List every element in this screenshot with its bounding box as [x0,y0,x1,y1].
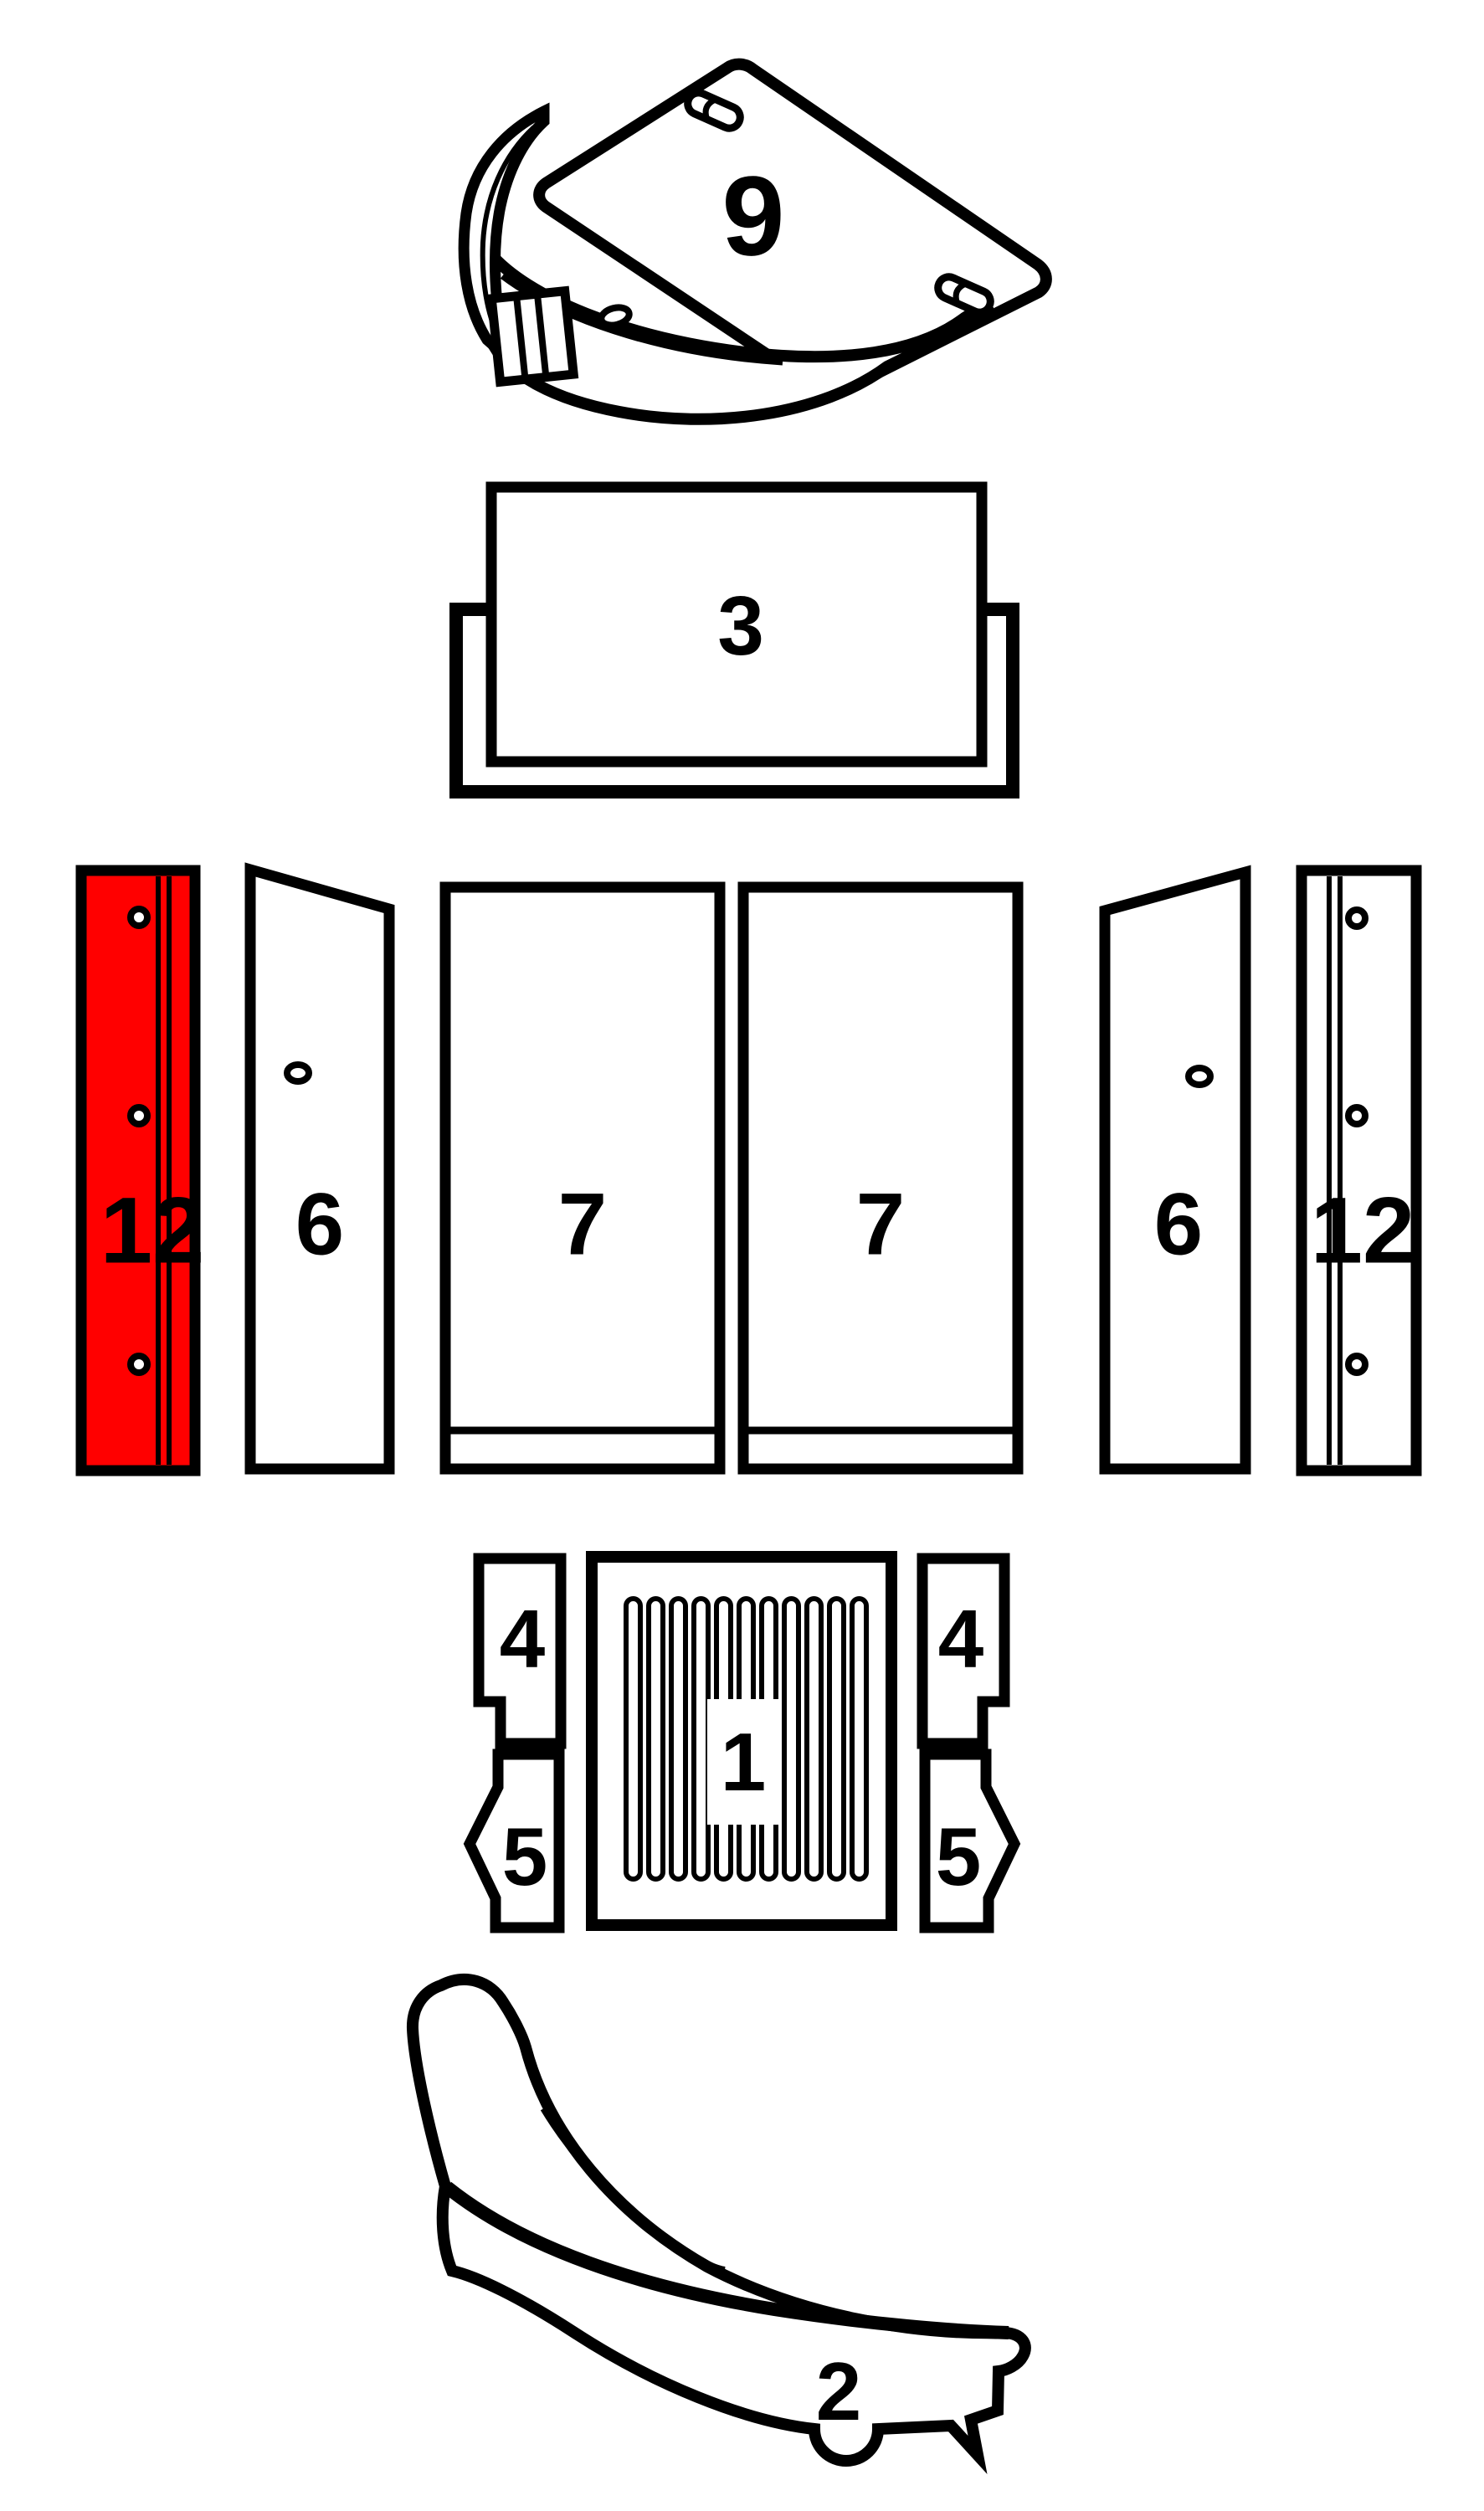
parts-diagram: 3 9 [0,0,1484,2511]
part-12-left-hole [131,909,147,926]
part-5-right-label: 5 [936,1810,982,1903]
part-12-left-body [81,870,195,1471]
part-1-grate[interactable]: 1 [592,1557,891,1925]
part-6-left-hole [287,1065,309,1081]
part-6-right-body [1105,872,1245,1469]
part-6-left-body [250,870,389,1469]
part-12-right-label: 12 [1311,1178,1415,1283]
part-12-left-side-liner[interactable]: 12 [81,870,204,1471]
part-12-left-hole [131,1107,147,1124]
part-9-label: 9 [721,153,784,280]
part-2-label: 2 [816,2345,862,2437]
part-2-log-guard[interactable]: 2 [413,1980,1025,2461]
part-12-right-hole [1348,1107,1365,1124]
part-12-left-label: 12 [100,1178,205,1283]
part-5-right-stone[interactable]: 5 [925,1754,1014,1928]
part-7-left-back-brick[interactable]: 7 [445,887,720,1469]
part-1-label: 1 [721,1716,767,1808]
part-4-right-stone[interactable]: 4 [922,1558,1004,1743]
part-5-left-stone[interactable]: 5 [470,1754,559,1928]
part-12-right-hole [1348,910,1365,927]
part-7-left-label: 7 [558,1176,607,1274]
part-6-right-hole [1189,1068,1210,1085]
part-7-right-back-brick[interactable]: 7 [743,887,1018,1469]
part-9-clip [491,291,573,383]
part-4-right-label: 4 [938,1593,984,1685]
part-3-back-panel[interactable]: 3 [456,487,1013,792]
part-6-left-label: 6 [295,1176,344,1274]
part-6-right-side-brick[interactable]: 6 [1105,872,1245,1469]
part-6-left-side-brick[interactable]: 6 [250,870,389,1469]
part-12-right-body [1302,870,1416,1471]
part-4-left-stone[interactable]: 4 [479,1558,561,1743]
part-12-left-hole [131,1356,147,1373]
part-4-left-label: 4 [500,1593,546,1685]
part-5-left-label: 5 [502,1810,548,1903]
part-6-right-label: 6 [1154,1176,1203,1274]
part-9-baffle[interactable]: 9 [464,64,1046,419]
part-12-right-hole [1348,1356,1365,1373]
part-7-right-label: 7 [856,1176,905,1274]
part-3-label: 3 [717,579,764,673]
part-12-right-side-liner[interactable]: 12 [1302,870,1416,1471]
